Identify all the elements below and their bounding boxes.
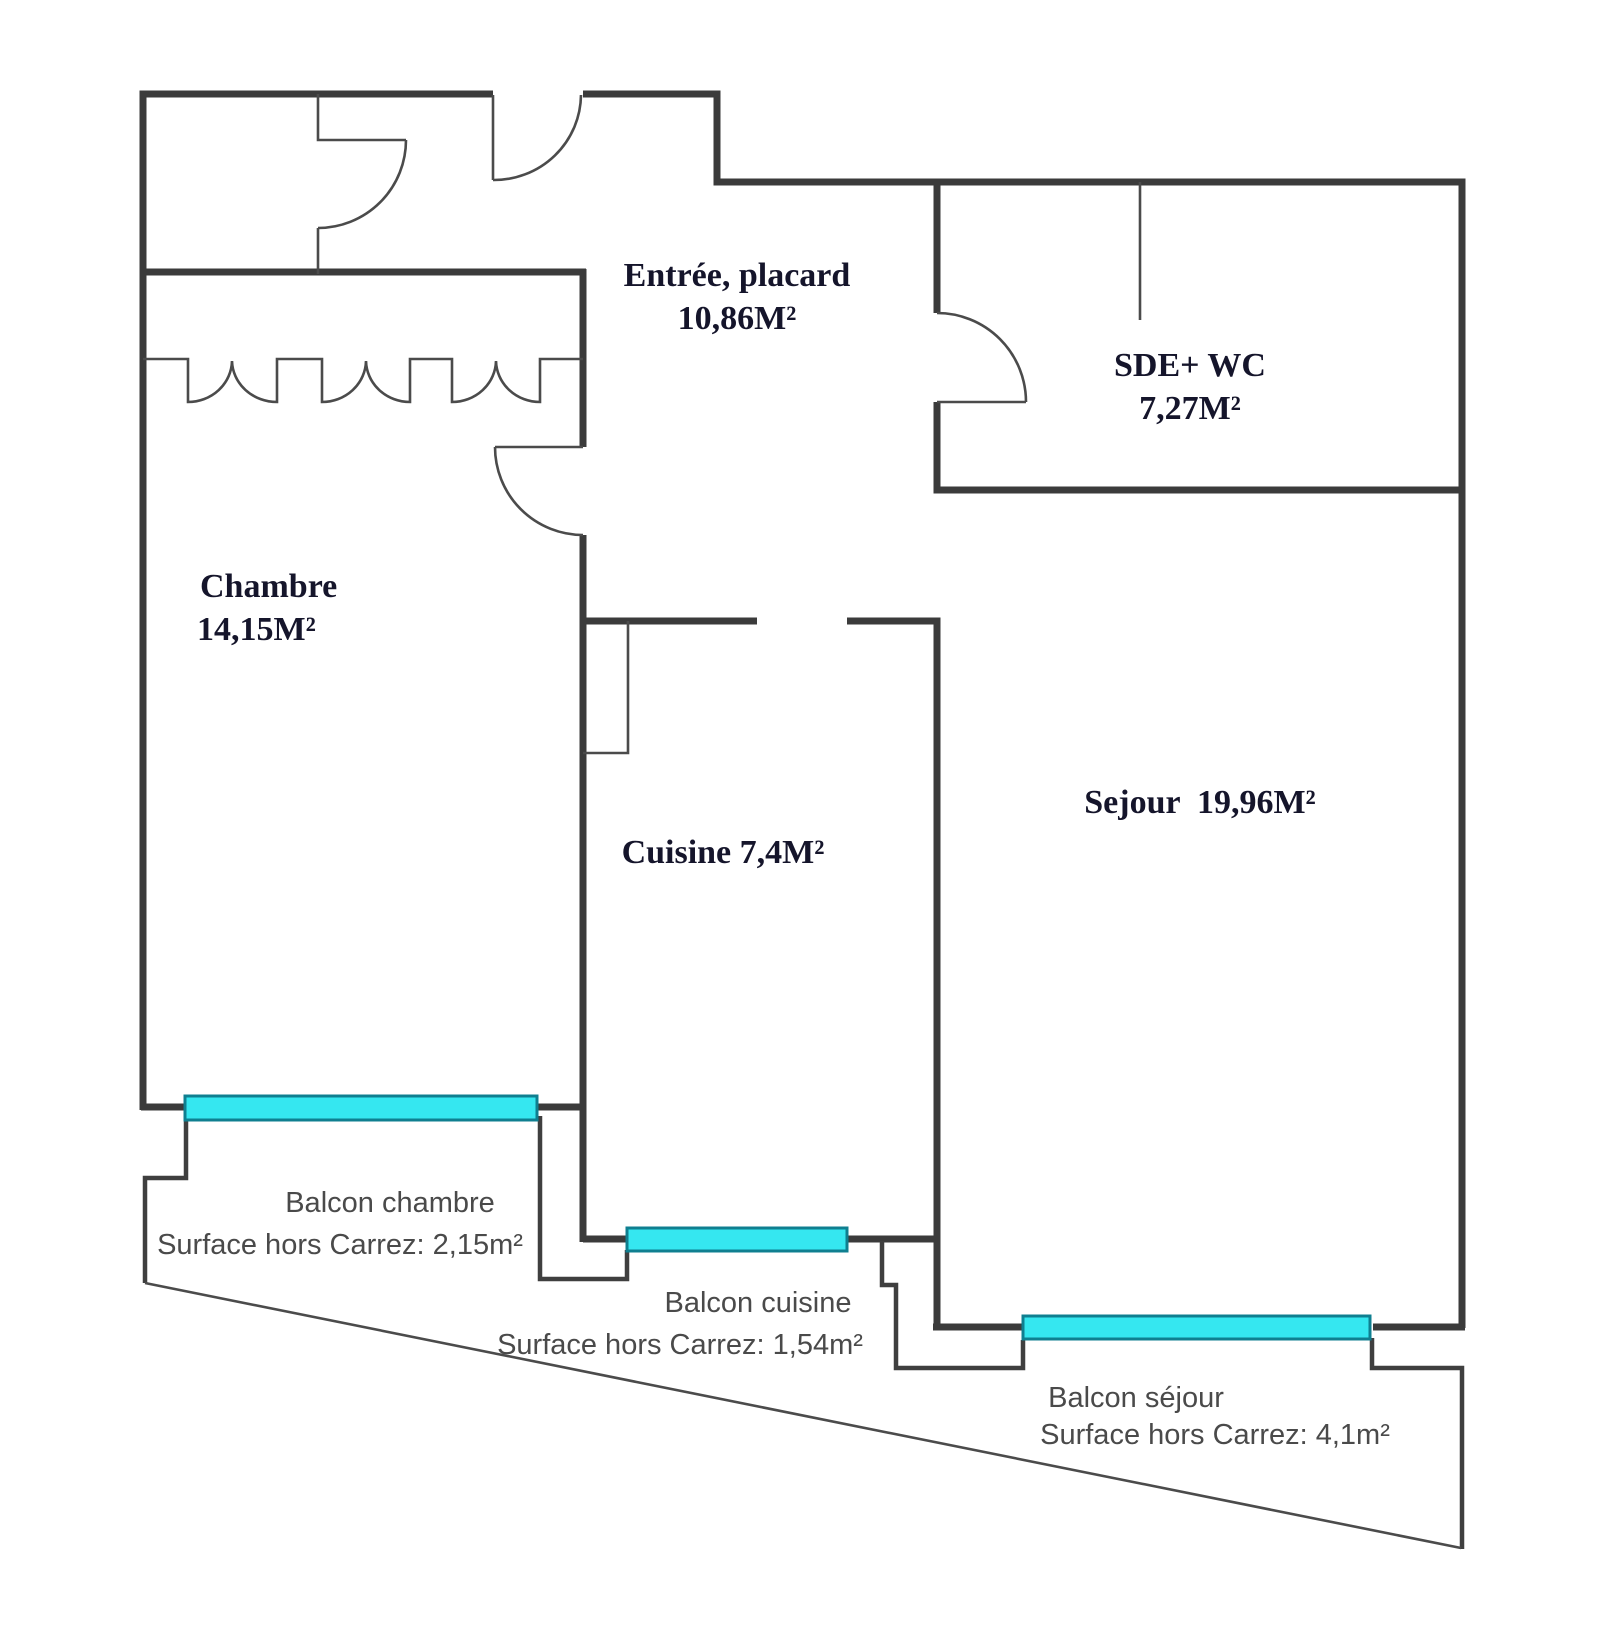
window-sejour	[1023, 1316, 1370, 1339]
label-entree-area: 10,86M²	[678, 300, 797, 337]
label-balcon-sejour: Balcon séjour	[1048, 1382, 1224, 1414]
label-chambre: Chambre	[200, 568, 337, 605]
closet-scallops	[143, 359, 583, 402]
sde-door-swing-arc	[937, 313, 1026, 402]
window-cuisine	[627, 1228, 847, 1251]
label-sde-area: 7,27M²	[1139, 390, 1241, 427]
label-sejour: Sejour 19,96M²	[1084, 784, 1316, 821]
entrance-door-swing-arc	[493, 95, 581, 180]
label-balcon-cuisine: Balcon cuisine	[665, 1287, 852, 1319]
placard-door-jamb	[318, 94, 406, 140]
duct-shaft-box	[583, 621, 628, 753]
window-chambre	[185, 1096, 537, 1120]
label-balcon-sejour-surface: Surface hors Carrez: 4,1m²	[1040, 1419, 1390, 1451]
chambre-door-swing-arc	[495, 447, 583, 535]
placard-door-swing-arc	[318, 140, 406, 228]
label-balcon-chambre-surface: Surface hors Carrez: 2,15m²	[157, 1229, 523, 1261]
parapet-balcon-cuisine-right	[882, 1241, 1023, 1368]
label-sde: SDE+ WC	[1114, 347, 1266, 384]
label-chambre-area: 14,15M²	[197, 611, 316, 648]
label-cuisine: Cuisine 7,4M²	[622, 834, 825, 871]
label-balcon-cuisine-surface: Surface hors Carrez: 1,54m²	[497, 1329, 863, 1361]
label-entree: Entrée, placard	[624, 257, 851, 294]
label-balcon-chambre: Balcon chambre	[285, 1187, 495, 1219]
floor-plan: Entrée, placard 10,86M² SDE+ WC 7,27M² C…	[0, 0, 1600, 1648]
wall-cuisine-top-right-and-sejour-left	[847, 621, 937, 1330]
